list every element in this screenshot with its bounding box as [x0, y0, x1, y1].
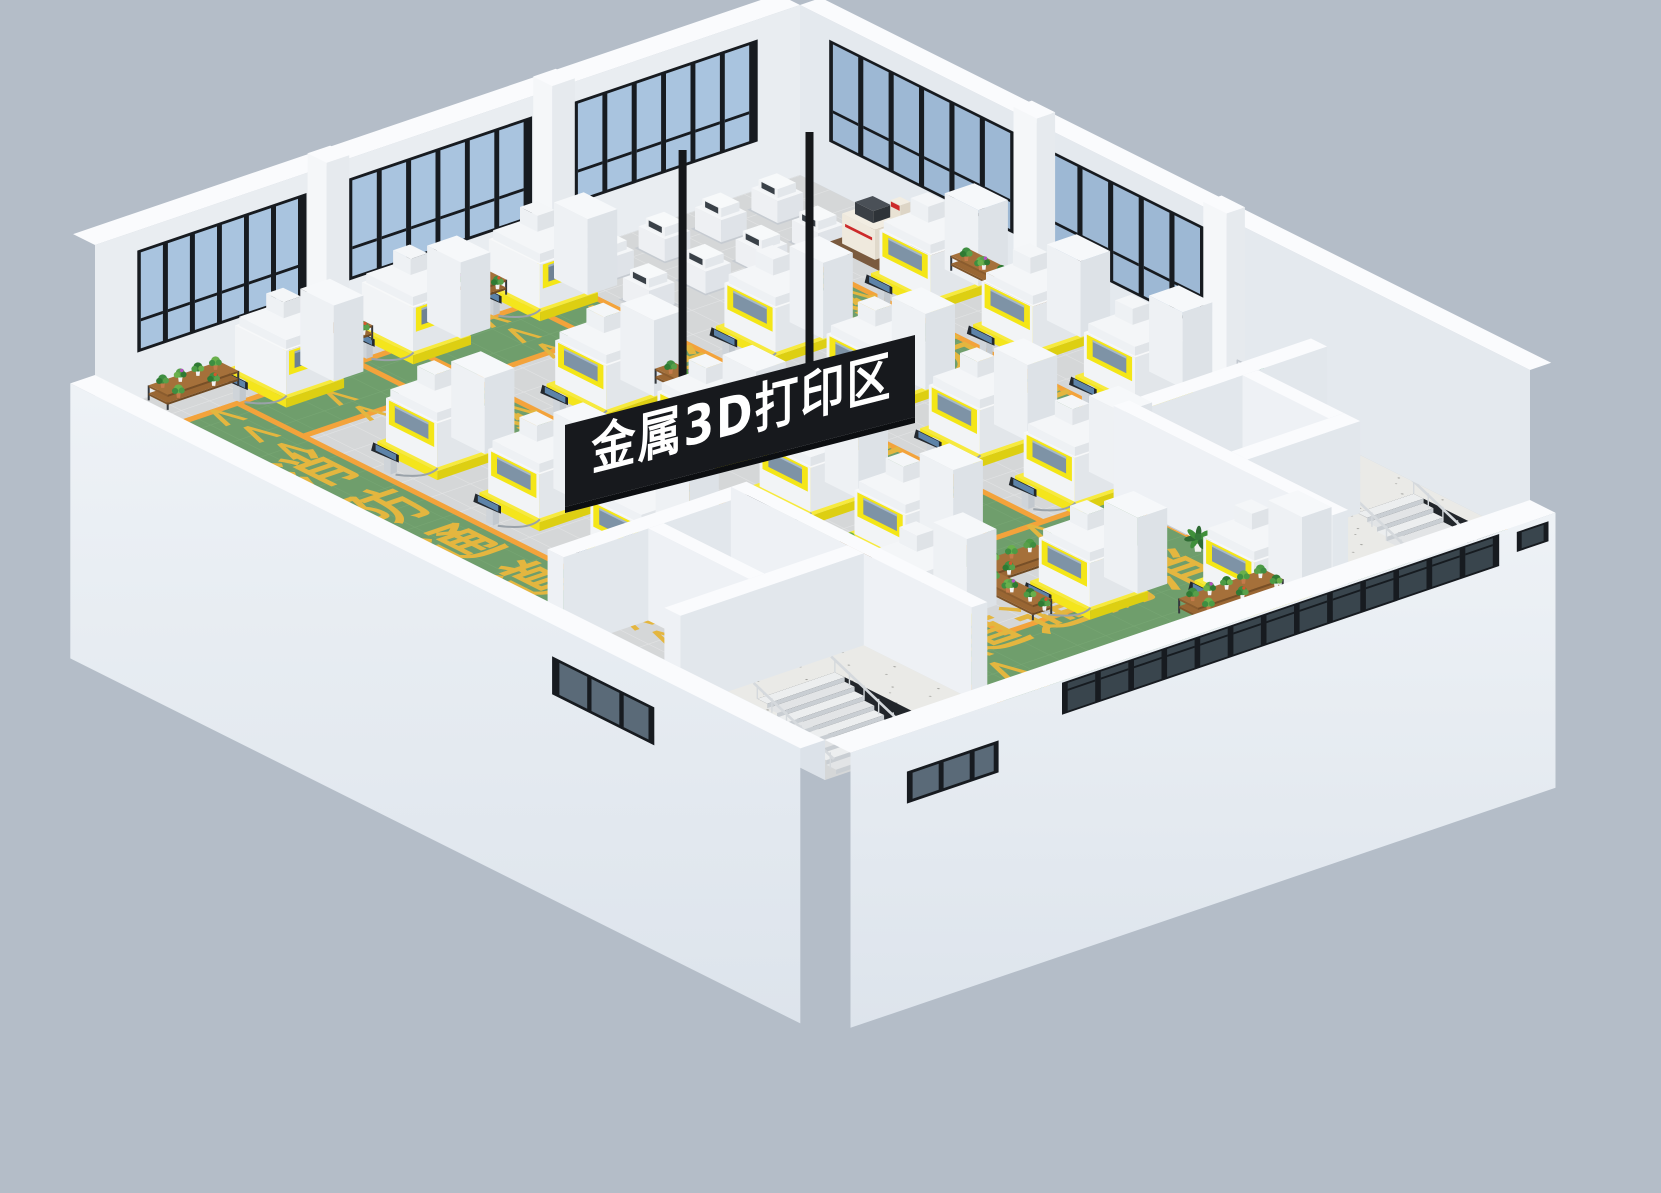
isometric-scene: <<<消防通道<<<<<<消防通道<<<<<<消防通道<<<<<<消防通道<<<… [0, 0, 1661, 1193]
filter-tower [1149, 285, 1212, 388]
filter-tower [554, 192, 617, 295]
factory-render: <<<消防通道<<<<<<消防通道<<<<<<消防通道<<<<<<消防通道<<<… [0, 0, 1661, 1193]
filter-tower [300, 279, 363, 382]
filter-tower [1104, 491, 1167, 594]
filter-tower [427, 236, 490, 339]
